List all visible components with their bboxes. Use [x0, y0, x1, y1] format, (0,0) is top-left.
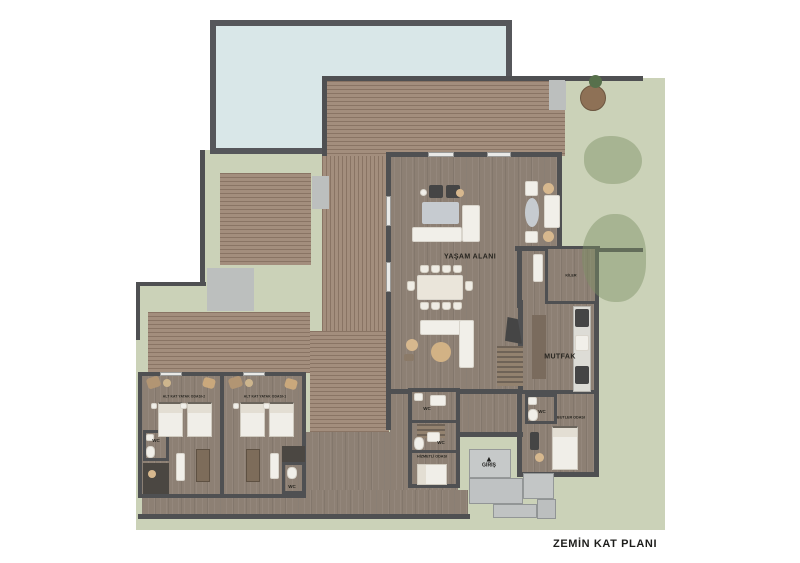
bedroom2-window [160, 372, 182, 376]
bedroom-divider-wall [220, 376, 224, 494]
sofa-upper-vertical [462, 205, 480, 242]
sofa-upper-horizontal [412, 227, 462, 242]
entrance-marker: ▲ GİRİŞ [481, 456, 497, 469]
deck-left-strip [322, 156, 388, 337]
boundary-wall-west-stub [136, 282, 140, 340]
deck-middle-wall [386, 345, 391, 430]
service-room-bed [417, 464, 447, 485]
console-white-2 [525, 231, 538, 243]
deck-middle [310, 331, 389, 432]
bedroom1-plant [245, 379, 253, 387]
living-window-2 [487, 152, 511, 157]
dining-chair [431, 302, 440, 310]
staircase-living [497, 346, 523, 386]
dining-chair [442, 265, 451, 273]
bedroom2-lounge-chair [176, 453, 185, 481]
stone-pad-small [312, 176, 329, 209]
side-table-beige [456, 189, 464, 197]
dining-chair [431, 265, 440, 273]
deck-upper [322, 76, 565, 156]
dining-table [417, 275, 463, 300]
living-window-3 [386, 196, 391, 226]
wc-block-divider-2 [412, 450, 456, 453]
tree-top-icon [589, 75, 602, 88]
wall-top-stub [565, 76, 643, 81]
label-living-area: YAŞAM ALANI [444, 254, 496, 261]
label-wc-mid: WC [437, 441, 445, 446]
bedroom2-desk [196, 449, 210, 482]
wc-block-divider-1 [412, 420, 456, 423]
armchair-dark-1 [429, 185, 443, 198]
hall-wall-bottom [457, 432, 523, 437]
round-pouf [431, 342, 451, 362]
bedroom2-nightstand-mid [180, 403, 187, 409]
butler-dresser [530, 432, 539, 450]
living-wall-top [386, 152, 562, 157]
tree-icon [580, 85, 606, 111]
label-kitchen: MUTFAK [544, 354, 576, 361]
stone-pad-square [207, 268, 254, 311]
bedroom2-plant [163, 379, 171, 387]
dining-chair [453, 265, 462, 273]
dining-chair [465, 281, 473, 291]
bedroom1-desk [246, 449, 260, 482]
piano [544, 195, 560, 228]
bedroom1-wardrobe [282, 446, 305, 462]
label-bedroom2-wc: WC [152, 439, 160, 444]
living-window-1 [428, 152, 454, 157]
plan-title: ZEMİN KAT PLANI [553, 538, 657, 550]
deck-island [220, 173, 311, 265]
dining-chair [420, 302, 429, 310]
butler-stool [535, 453, 544, 462]
small-table-dark [404, 354, 414, 361]
label-wc-top: WC [423, 407, 431, 412]
living-window-4 [386, 262, 391, 292]
butler-wc-toilet [528, 409, 538, 421]
dining-chair [453, 302, 462, 310]
boundary-wall-west-horizontal [136, 282, 206, 286]
bedroom1-bed-left [240, 402, 265, 437]
stone-pad-top [549, 80, 566, 110]
wing-wall-left-upper [517, 246, 522, 308]
console-white-1 [525, 181, 538, 196]
label-bedroom1-wc: WC [288, 485, 296, 490]
bedroom2-wc-toilet [146, 446, 155, 458]
planter-beige-2 [543, 231, 554, 242]
entrance-step-4 [493, 504, 537, 518]
bedroom1-bed-right [269, 402, 294, 437]
shrub-upper [584, 136, 642, 184]
bedroom2-bed-right [187, 402, 212, 437]
label-bedroom2: ALT KAT YATAK ODASI-2 [163, 395, 205, 398]
entrance-step-2 [469, 478, 523, 504]
living-wall-bottom-right [456, 389, 521, 394]
sofa-lower-vertical [459, 320, 474, 368]
bedroom2-wardrobe-stool [148, 470, 156, 478]
label-bedroom1: ALT KAT YATAK ODASI-1 [244, 395, 286, 398]
oval-table [525, 198, 539, 227]
label-butler-wc: WC [538, 410, 546, 415]
planter-beige-1 [543, 183, 554, 194]
floor-plan-canvas: YAŞAM ALANI KİLER MUTFAK WC BUTLER ODASI… [0, 0, 800, 563]
bedroom1-nightstand-mid [263, 403, 270, 409]
dining-chair [407, 281, 415, 291]
bedroom2-nightstand-left [151, 403, 157, 409]
dining-chair [420, 265, 429, 273]
bedroom1-window [243, 372, 265, 376]
deck-bedroom-terrace [148, 312, 310, 373]
shrub-lower [582, 214, 646, 302]
wc1-sink [414, 393, 423, 401]
butler-bed [552, 426, 578, 470]
entrance-step-3 [523, 473, 554, 499]
bedroom1-nightstand-left [233, 403, 239, 409]
bedroom1-lounge-chair [270, 453, 279, 479]
label-butler-room: BUTLER ODASI [557, 416, 585, 420]
kitchen-sink [575, 335, 589, 351]
bedroom2-wardrobe [143, 463, 169, 494]
butler-wc-sink [528, 397, 537, 405]
side-table-white [420, 189, 427, 196]
wc1-shower [430, 395, 446, 406]
fridge [533, 254, 543, 282]
area-rug [422, 202, 459, 224]
kitchen-appliance-top [575, 309, 589, 327]
site-wall-bottom [138, 514, 470, 519]
dining-chair [442, 302, 451, 310]
entrance-step-5 [537, 499, 556, 519]
lounge-chair-beige [406, 339, 418, 351]
kitchen-island [532, 315, 546, 379]
bedroom1-wc-toilet [287, 467, 297, 479]
boundary-wall-west-vertical [200, 150, 205, 286]
kitchen-appliance-bottom [575, 366, 589, 384]
label-pantry: KİLER [565, 274, 576, 278]
wc2-toilet [414, 437, 424, 450]
hall-floor-west [306, 432, 390, 492]
label-service-room: HİZMETLİ ODASI [417, 455, 447, 459]
entrance-arrow-icon: ▲ [485, 456, 493, 463]
entrance-label: GİRİŞ [482, 463, 496, 468]
